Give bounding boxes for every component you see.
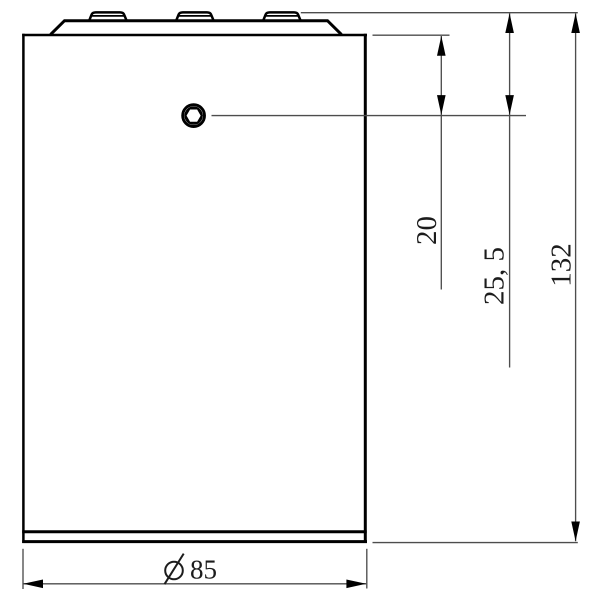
svg-text:20: 20 — [411, 216, 443, 245]
svg-text:85: 85 — [190, 555, 217, 585]
svg-text:25, 5: 25, 5 — [479, 247, 511, 305]
svg-text:132: 132 — [546, 243, 578, 287]
